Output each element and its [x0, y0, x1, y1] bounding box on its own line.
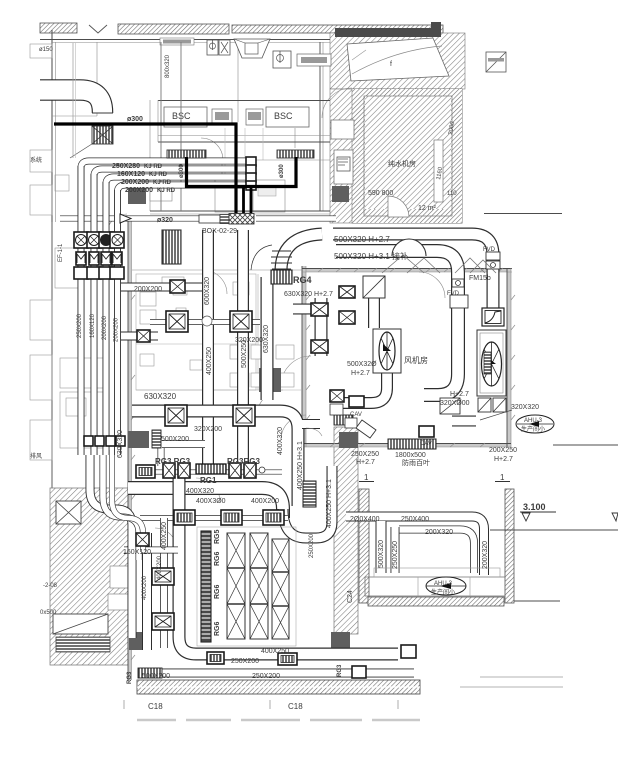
svg-text:1800x500: 1800x500 [395, 452, 426, 459]
svg-text:AHU-3: AHU-3 [434, 581, 453, 587]
svg-text:RG4: RG4 [293, 275, 312, 285]
svg-text:400X200: 400X200 [142, 575, 148, 600]
svg-text:RG1: RG1 [200, 476, 217, 485]
svg-text:800x320: 800x320 [165, 54, 171, 78]
svg-text:500X200: 500X200 [142, 673, 170, 680]
svg-text:RG3 RG3: RG3 RG3 [155, 457, 191, 466]
svg-text:200X200: 200X200 [102, 315, 108, 340]
svg-text:RG3: RG3 [127, 671, 133, 684]
svg-text:250X400: 250X400 [401, 516, 429, 523]
svg-text:630X320: 630X320 [117, 430, 124, 458]
svg-text:110: 110 [447, 191, 457, 197]
svg-text:RG3: RG3 [337, 664, 343, 677]
svg-text:400X200: 400X200 [251, 498, 279, 505]
svg-text:生产间小: 生产间小 [431, 588, 455, 596]
svg-text:ø300: ø300 [279, 164, 285, 178]
svg-text:200X200: 200X200 [134, 286, 162, 293]
svg-text:500X250: 500X250 [241, 340, 248, 368]
svg-text:400X320: 400X320 [277, 427, 284, 455]
svg-text:CAV: CAV [350, 412, 362, 418]
svg-text:500X320 H+2.7: 500X320 H+2.7 [334, 235, 390, 244]
svg-text:320X200: 320X200 [194, 426, 222, 433]
svg-text:630X320: 630X320 [263, 325, 270, 353]
svg-text:320X320: 320X320 [511, 404, 539, 411]
svg-text:630X320 H+2.7: 630X320 H+2.7 [284, 291, 333, 298]
svg-text:250X250: 250X250 [351, 451, 379, 458]
svg-text:RG6: RG6 [214, 622, 221, 637]
svg-text:2Ø0X400: 2Ø0X400 [350, 516, 380, 523]
svg-text:400X250 H+3.1: 400X250 H+3.1 [297, 441, 304, 490]
svg-text:f: f [390, 61, 392, 68]
svg-text:KJ RD: KJ RD [149, 172, 168, 178]
svg-text:RG6: RG6 [214, 552, 221, 567]
svg-text:RG5: RG5 [214, 530, 221, 545]
svg-text:BSC: BSC [274, 111, 293, 121]
svg-text:H+2.7: H+2.7 [450, 391, 469, 398]
svg-text:200X250: 200X250 [489, 447, 517, 454]
svg-text:RG3RG3: RG3RG3 [227, 457, 260, 466]
svg-text:200X320: 200X320 [425, 529, 453, 536]
svg-text:200X200: 200X200 [114, 317, 120, 342]
svg-text:500X320: 500X320 [378, 540, 385, 568]
svg-text:0x500: 0x500 [40, 610, 57, 616]
svg-text:防雨百叶: 防雨百叶 [402, 458, 430, 467]
svg-text:320XØ00: 320XØ00 [440, 400, 470, 407]
svg-text:1: 1 [364, 473, 369, 482]
svg-text:200X320: 200X320 [482, 541, 489, 569]
svg-text:KJ RD: KJ RD [144, 164, 163, 170]
svg-text:3.100: 3.100 [523, 502, 546, 512]
svg-text:风机房: 风机房 [404, 355, 428, 365]
svg-text:400X320: 400X320 [186, 488, 214, 495]
svg-text:250X280: 250X280 [112, 163, 140, 170]
svg-text:250X200: 250X200 [252, 673, 280, 680]
svg-text:FVD: FVD [447, 291, 460, 297]
svg-text:200X200: 200X200 [121, 179, 149, 186]
svg-text:FM15b: FM15b [469, 275, 491, 282]
svg-text:400X250 H+3.1: 400X250 H+3.1 [326, 479, 333, 528]
svg-text:AHU-3: AHU-3 [524, 418, 543, 424]
svg-text:FVD: FVD [483, 247, 496, 253]
svg-text:12 m²: 12 m² [418, 205, 437, 212]
svg-text:ø320: ø320 [157, 217, 173, 224]
svg-text:600X320: 600X320 [204, 277, 211, 305]
svg-text:H+2.7: H+2.7 [356, 459, 375, 466]
svg-text:250X200: 250X200 [231, 658, 259, 665]
svg-text:590 800: 590 800 [368, 190, 393, 197]
svg-text:160X120: 160X120 [123, 549, 151, 556]
svg-text:160X120: 160X120 [117, 171, 145, 178]
svg-text:500X320 H+3.1 接补: 500X320 H+3.1 接补 [334, 251, 408, 261]
svg-text:C18: C18 [148, 702, 163, 711]
svg-text:320X200: 320X200 [235, 337, 263, 344]
svg-text:ø150: ø150 [39, 47, 53, 53]
svg-text:RG6: RG6 [214, 585, 221, 600]
svg-text:生产间小: 生产间小 [521, 425, 545, 433]
svg-text:BSC: BSC [172, 111, 191, 121]
svg-text:500X32Ø: 500X32Ø [347, 361, 377, 368]
svg-text:500X200: 500X200 [161, 436, 189, 443]
svg-text:系统: 系统 [30, 156, 42, 164]
svg-text:CAV: CAV [420, 441, 432, 447]
svg-text:250X250: 250X250 [392, 541, 399, 569]
svg-text:160X120: 160X120 [90, 313, 96, 338]
svg-text:KJ RD: KJ RD [157, 188, 176, 194]
svg-text:200X200: 200X200 [125, 187, 153, 194]
svg-text:400X250: 400X250 [206, 347, 213, 375]
svg-text:BOX-02-29: BOX-02-29 [202, 228, 237, 235]
svg-text:250X200: 250X200 [77, 313, 83, 338]
svg-text:250X200: 250X200 [309, 533, 315, 558]
svg-text:H+2.7: H+2.7 [494, 456, 513, 463]
svg-text:400X250: 400X250 [261, 648, 289, 655]
svg-text:1: 1 [500, 473, 505, 482]
svg-text:纯水机房: 纯水机房 [388, 159, 416, 168]
svg-text:C18: C18 [288, 702, 303, 711]
svg-text:C24: C24 [347, 590, 354, 603]
svg-text:400X250: 400X250 [161, 522, 168, 550]
svg-text:H+2.7: H+2.7 [351, 370, 370, 377]
svg-text:-2-08: -2-08 [43, 583, 58, 589]
svg-text:KJ RD: KJ RD [153, 180, 172, 186]
svg-text:排风: 排风 [30, 452, 42, 460]
svg-text:ø300: ø300 [179, 164, 185, 178]
svg-text:EF-1-1: EF-1-1 [58, 243, 64, 262]
svg-text:ø300: ø300 [127, 116, 143, 123]
svg-text:400X200: 400X200 [157, 555, 163, 580]
svg-text:630X320: 630X320 [144, 392, 177, 401]
svg-text:400X3Ø0: 400X3Ø0 [196, 498, 226, 505]
